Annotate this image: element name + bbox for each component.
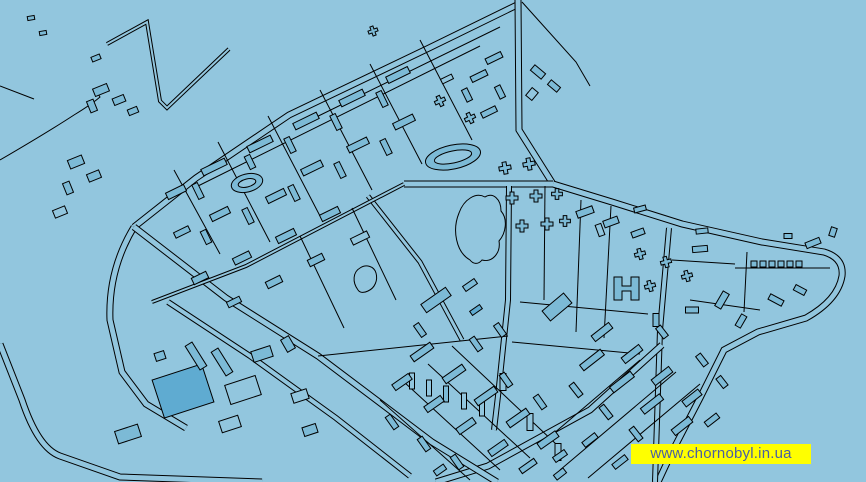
watermark-url-text: www.chornobyl.in.ua (650, 444, 791, 464)
pripyat-city-map (0, 0, 866, 482)
map-viewport: www.chornobyl.in.ua (0, 0, 866, 482)
watermark-badge: www.chornobyl.in.ua (631, 444, 811, 464)
